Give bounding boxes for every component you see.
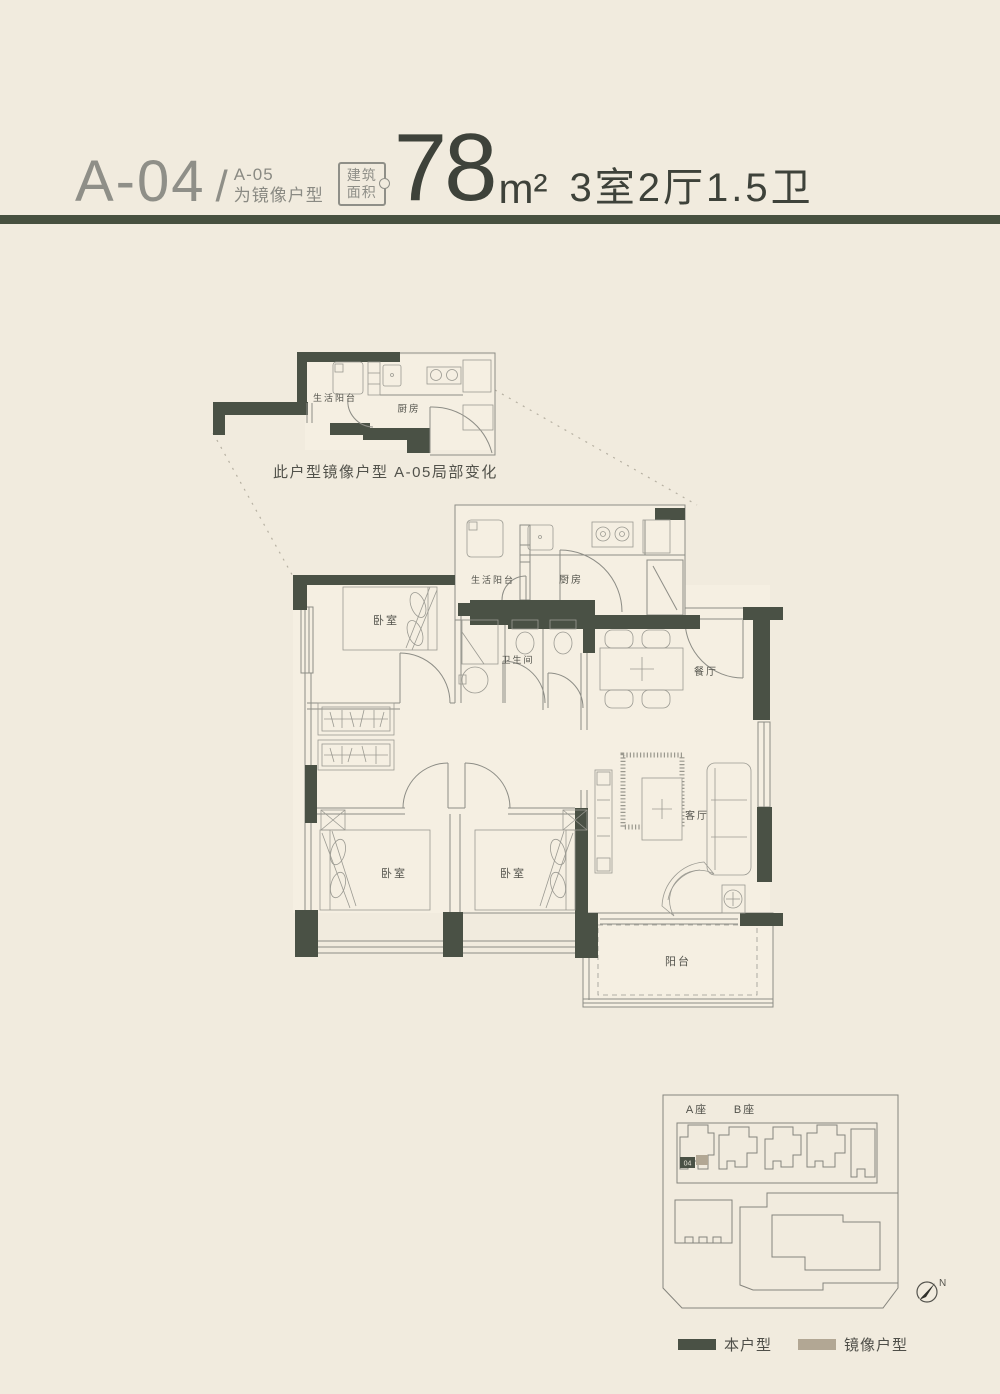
label-balcony: 阳台 <box>665 954 691 968</box>
label-service-balcony: 生活阳台 <box>471 574 515 585</box>
mirror-note-block: A-05 为镜像户型 <box>234 164 324 207</box>
this-unit-swatch <box>678 1339 716 1350</box>
this-unit-label: 本户型 <box>724 1334 772 1355</box>
site-tower-row <box>677 1123 877 1183</box>
label-bedroom-left: 卧室 <box>381 866 407 880</box>
stamp-seal-icon <box>379 178 390 189</box>
divider-rule <box>0 215 1000 224</box>
title-block: A-04 / A-05 为镜像户型 建筑 面积 78 m² 3室2厅1.5卫 <box>75 128 814 206</box>
label-bedroom-middle: 卧室 <box>500 866 526 880</box>
separator-slash: / <box>216 168 228 206</box>
mirror-unit-note: 为镜像户型 <box>234 185 324 206</box>
legend-mirror-unit: 镜像户型 <box>798 1334 908 1355</box>
label-living: 客厅 <box>685 809 709 822</box>
rooms-spec: 3室2厅1.5卫 <box>570 171 814 206</box>
site-unit-05-marker <box>696 1155 708 1165</box>
site-podium <box>675 1193 898 1290</box>
label-bedroom-top: 卧室 <box>373 613 399 627</box>
unit-code: A-04 <box>75 158 206 206</box>
area-unit: m² <box>499 172 548 206</box>
floorplan-page: A-04 / A-05 为镜像户型 建筑 面积 78 m² 3室2厅1.5卫 <box>0 0 1000 1394</box>
mirror-unit-swatch <box>798 1339 836 1350</box>
mirror-unit-code: A-05 <box>234 164 324 185</box>
compass-icon: N <box>917 1278 946 1302</box>
site-plan: 04 A座 B座 N <box>655 1085 965 1330</box>
mirror-variation-note: 此户型镜像户型 A-05局部变化 <box>273 461 498 482</box>
area-value: 78 <box>394 131 495 206</box>
area-stamp-line2: 面积 <box>347 184 377 202</box>
detail-kitchen-label: 厨房 <box>397 403 420 415</box>
site-tower-b-label: B座 <box>734 1102 756 1116</box>
legend: 本户型 镜像户型 <box>678 1334 908 1355</box>
mirror-unit-label: 镜像户型 <box>844 1334 908 1355</box>
site-unit-04-label: 04 <box>684 1161 692 1168</box>
label-bathroom: 卫生间 <box>501 654 534 665</box>
site-tower-a-label: A座 <box>686 1102 708 1116</box>
main-floorplan: 生活阳台 厨房 卧室 卫生间 餐厅 客厅 卧室 卧室 阳台 <box>290 500 790 1020</box>
legend-this-unit: 本户型 <box>678 1334 772 1355</box>
label-kitchen: 厨房 <box>559 573 583 586</box>
detail-service-balcony-label: 生活阳台 <box>313 392 357 403</box>
detail-plan: 生活阳台 厨房 <box>205 345 505 463</box>
area-stamp-line1: 建筑 <box>347 167 377 185</box>
label-dining: 餐厅 <box>694 665 718 678</box>
area-stamp: 建筑 面积 <box>338 162 386 206</box>
compass-n-label: N <box>939 1278 946 1289</box>
